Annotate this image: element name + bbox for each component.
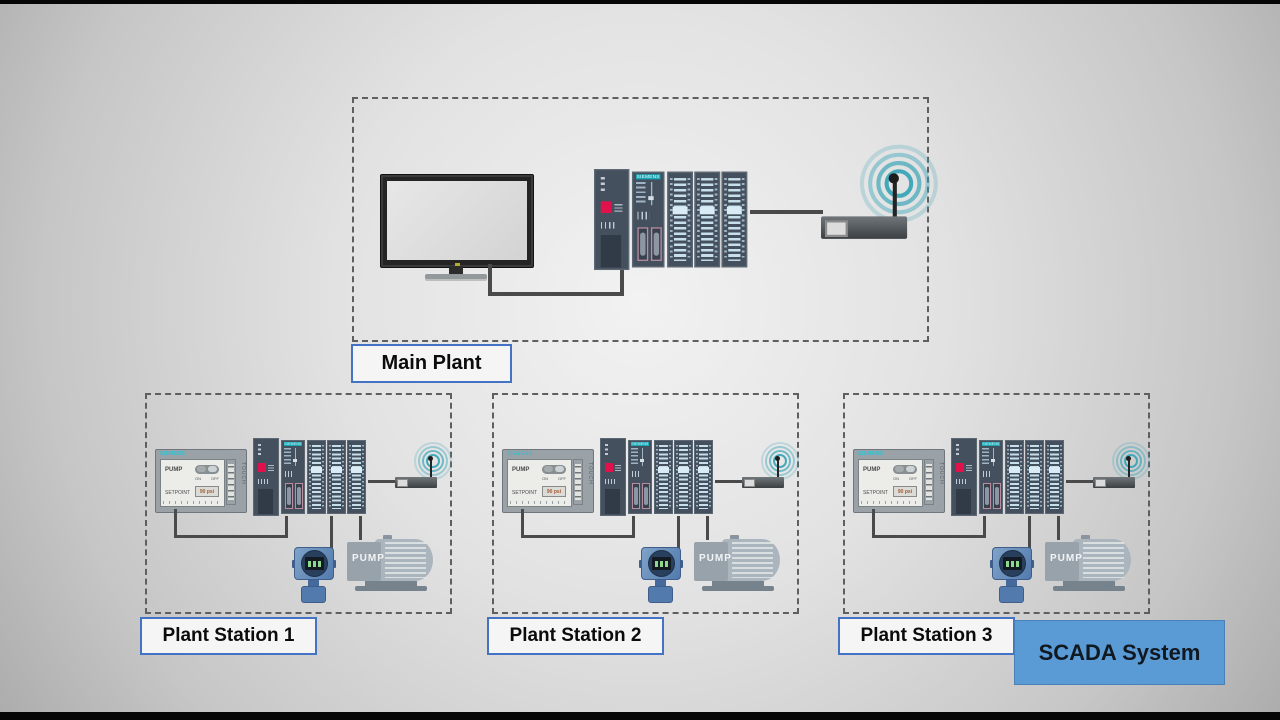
pump-on-off-toggle [195,465,219,474]
hmi-screen: PUMP ON OFF SETPOINT 90 psi [858,459,923,507]
cpu-port-2 [651,227,662,261]
plc-status-leds [605,444,608,457]
plc-io-module [667,172,693,268]
io-terminal-rows [728,178,740,261]
router-antenna-tip [775,456,780,461]
io-terminal-rows [674,178,686,261]
io-label-band [311,467,322,473]
plc-status-leds [956,444,959,457]
scada-monitor [380,174,532,284]
router-antenna [1128,460,1130,478]
cpu-mode-slider [642,448,643,466]
hmi-screen: PUMP ON OFF SETPOINT 90 psi [160,459,225,507]
io-led-column [1020,445,1022,509]
io-label-band [678,467,689,473]
cable-plc-drop [632,516,635,538]
cable-hmi-plc [521,535,635,538]
flow-display-bezel [301,550,328,577]
plc-power-slot [605,489,620,514]
router-body [1093,477,1135,488]
io-led-column [669,445,671,509]
cable-hmi-plc [174,535,288,538]
router-antenna-tip [889,173,899,183]
cpu-port-1 [632,483,640,509]
wireless-router [821,161,915,243]
plc-io-module [1025,440,1044,514]
siemens-logo: SIEMENS [982,442,1000,446]
io-led-column [349,445,351,509]
router-antenna [430,460,432,478]
plc-rack: SIEMENS [253,438,368,516]
wireless-router [395,450,441,490]
station-label: Plant Station 3 [838,617,1015,655]
hmi-side-label: TOUCH [584,462,593,485]
cpu-port-1 [637,227,648,261]
main-plant-boundary: SIEMENS [352,97,929,342]
pump-foot [702,586,774,591]
toggle-off-label: OFF [558,476,566,481]
io-led-column [689,445,691,509]
monitor-screen [387,181,527,260]
router-body [742,477,784,488]
hmi-panel: SIEMENS PUMP ON OFF SETPOINT 90 psi TOUC… [502,449,594,513]
cable-plc-drop [983,516,986,538]
router-port [825,220,848,236]
cpu-mode-slider-knob [648,196,653,200]
station-boundary: SIEMENS PUMP ON OFF SETPOINT 90 psi TOUC… [145,393,452,614]
flow-transmitter-body [992,547,1032,580]
siemens-logo: SIEMENS [631,442,649,446]
scada-box-text: SCADA System [1039,640,1201,666]
plc-io-module [694,440,713,514]
io-led-column [697,178,700,261]
monitor-stand-neck [449,266,463,274]
main-plant-label-text: Main Plant [381,352,481,375]
plc-cpu-module: SIEMENS [979,440,1003,514]
cable-plc-router [715,480,743,483]
station-label-text: Plant Station 2 [510,625,642,647]
toggle-on-label: ON [893,476,899,481]
io-led-column [1007,445,1009,509]
toggle-labels: ON OFF [195,476,219,481]
plc-label-lines [614,204,622,212]
toggle-off-label: OFF [211,476,219,481]
flow-transmitter [294,542,334,604]
flow-meter-flange [999,586,1024,603]
io-led-column [1027,445,1029,509]
cpu-port-2 [295,483,303,509]
siemens-logo: SIEMENS [636,174,660,179]
io-led-column [329,445,331,509]
io-led-column [696,445,698,509]
letterbox-top [0,0,1280,4]
cable-hmi-drop [174,509,177,538]
io-led-column [322,445,324,509]
plc-terminal-marks [956,479,966,484]
plc-label-lines [966,465,972,471]
io-terminal-rows [1050,445,1059,509]
router-antenna [777,460,779,478]
plc-io-module [721,172,747,268]
router-port [1095,479,1106,487]
io-led-column [656,445,658,509]
plc-power-slot [601,235,621,267]
plc-power-module [600,438,626,516]
router-antenna [893,182,897,219]
io-terminal-rows [352,445,361,509]
io-terminal-rows [679,445,688,509]
cpu-port-1 [983,483,991,509]
io-label-band [331,467,342,473]
router-antenna-tip [428,456,433,461]
hmi-panel: SIEMENS PUMP ON OFF SETPOINT 90 psi TOUC… [155,449,247,513]
cable-monitor-plc [488,292,624,296]
wireless-router-device [1093,450,1139,490]
io-led-column [676,445,678,509]
io-led-column [724,178,727,261]
plc-rack-modules: SIEMENS [600,438,715,516]
hmi-pump-label: PUMP [165,467,182,473]
cable-hmi-drop [872,509,875,538]
cpu-mode-slider [993,448,994,466]
router-body [821,216,907,239]
plc-io-module [1045,440,1064,514]
io-led-column [342,445,344,509]
flow-transmitter-body [641,547,681,580]
toggle-on-label: ON [542,476,548,481]
flow-display [652,557,671,570]
router-port [744,479,755,487]
plc-io-module [307,440,326,514]
plc-rack: SIEMENS [600,438,715,516]
hmi-side-label: TOUCH [935,462,944,485]
wireless-router-device [742,450,788,490]
flow-meter-flange [648,586,673,603]
cpu-led-column [982,448,989,464]
io-label-band [1009,467,1020,473]
flow-display [1003,557,1022,570]
hmi-panel: SIEMENS PUMP ON OFF SETPOINT 90 psi TOUC… [853,449,945,513]
plc-terminal-marks [605,479,615,484]
cable-plc-router [1066,480,1094,483]
io-terminal-rows [312,445,321,509]
plc-rack-modules: SIEMENS [253,438,368,516]
cable-plc-drop [620,270,624,296]
io-led-column [742,178,745,261]
pump-motor: PUMP [694,535,782,593]
setpoint-label: SETPOINT [863,490,888,496]
plc-power-module [594,169,629,270]
plc-io-module [327,440,346,514]
io-terminal-rows [1030,445,1039,509]
monitor-stand-base [425,274,487,279]
hmi-menu-strip [573,459,583,505]
pump-label: PUMP [352,553,385,564]
cpu-port-2 [642,483,650,509]
io-led-column [1047,445,1049,509]
scada-overview-diagram: SIEMENS [0,0,1280,720]
plc-cpu-module: SIEMENS [281,440,305,514]
plc-rack: SIEMENS [594,169,750,270]
siemens-logo: SIEMENS [160,451,185,458]
pump-on-off-toggle [542,465,566,474]
toggle-on-label: ON [195,476,201,481]
pump-label: PUMP [699,553,732,564]
io-label-band [658,467,669,473]
toggle-off-label: OFF [909,476,917,481]
scada-box: SCADA System [1014,620,1225,685]
plc-rack-modules: SIEMENS [951,438,1066,516]
cpu-terminal-marks [632,471,641,477]
io-led-column [715,178,718,261]
io-label-band [1049,467,1060,473]
hmi-pump-label: PUMP [863,467,880,473]
pump-foot [355,586,427,591]
cpu-led-column [636,182,645,203]
plc-terminal-marks [258,479,268,484]
plc-label-lines [615,465,621,471]
hmi-pump-label: PUMP [512,467,529,473]
io-terminal-rows [1010,445,1019,509]
cpu-mode-slider [651,182,652,205]
hmi-menu-strip [924,459,934,505]
toggle-labels: ON OFF [893,476,917,481]
plc-cpu-module: SIEMENS [632,172,665,268]
io-led-column [1060,445,1062,509]
io-led-column [670,178,673,261]
flow-display-bezel [999,550,1026,577]
io-terminal-rows [701,178,713,261]
cpu-mode-slider-knob [293,459,297,462]
plc-power-slot [258,489,273,514]
monitor-frame [380,174,534,268]
setpoint-value: 90 psi [542,486,566,497]
siemens-logo: SIEMENS [858,451,883,458]
siemens-logo: SIEMENS [284,442,302,446]
cpu-terminal-marks [983,471,992,477]
io-label-band [673,206,688,214]
plc-io-module [654,440,673,514]
cpu-mode-slider-knob [640,459,644,462]
plc-io-module [347,440,366,514]
wireless-router [742,450,788,490]
toggle-labels: ON OFF [542,476,566,481]
cable-hmi-plc [872,535,986,538]
plc-power-module [253,438,279,516]
cpu-terminal-marks [637,212,649,220]
wireless-router-device [395,450,441,490]
station-label-text: Plant Station 1 [163,625,295,647]
plc-red-indicator [956,463,964,472]
cpu-led-column [631,448,638,464]
plc-status-leds [258,444,261,457]
io-label-band [700,206,715,214]
pump-on-off-toggle [893,465,917,474]
siemens-logo: SIEMENS [507,451,532,458]
io-led-column [309,445,311,509]
plc-power-module [951,438,977,516]
plc-label-lines [268,465,274,471]
cpu-led-column [284,448,291,464]
io-label-band [727,206,742,214]
cable-hmi-drop [521,509,524,538]
cable-plc-router [750,210,823,214]
flow-meter-flange [301,586,326,603]
cpu-port-1 [285,483,293,509]
cpu-terminal-marks [285,471,294,477]
setpoint-value: 90 psi [893,486,917,497]
plc-io-module [674,440,693,514]
plc-power-slot [956,489,971,514]
flow-transmitter [641,542,681,604]
setpoint-label: SETPOINT [512,490,537,496]
io-led-column [1040,445,1042,509]
station-label-text: Plant Station 3 [861,625,993,647]
station-label: Plant Station 1 [140,617,317,655]
pump-foot [1053,586,1125,591]
cpu-mode-slider [295,448,296,466]
io-led-column [688,178,691,261]
io-terminal-rows [332,445,341,509]
router-body [395,477,437,488]
io-label-band [351,467,362,473]
hmi-screen: PUMP ON OFF SETPOINT 90 psi [507,459,572,507]
pump-motor: PUMP [347,535,435,593]
cable-plc-drop [285,516,288,538]
flow-display-bezel [648,550,675,577]
station-boundary: SIEMENS PUMP ON OFF SETPOINT 90 psi TOUC… [492,393,799,614]
plc-red-indicator [258,463,266,472]
cpu-mode-slider-knob [991,459,995,462]
io-terminal-rows [659,445,668,509]
router-antenna-tip [1126,456,1131,461]
flow-display [305,557,324,570]
plc-rack-modules: SIEMENS [594,169,750,270]
plc-io-module [694,172,720,268]
wireless-router-device [821,161,915,243]
setpoint-value: 90 psi [195,486,219,497]
hmi-menu-strip [226,459,236,505]
plc-io-module [1005,440,1024,514]
io-led-column [709,445,711,509]
plc-red-indicator [601,201,612,213]
io-label-band [1029,467,1040,473]
letterbox-bottom [0,712,1280,720]
io-terminal-rows [699,445,708,509]
router-port [397,479,408,487]
station-boundary: SIEMENS PUMP ON OFF SETPOINT 90 psi TOUC… [843,393,1150,614]
cpu-port-2 [993,483,1001,509]
plc-red-indicator [605,463,613,472]
cable-plc-router [368,480,396,483]
main-plant-label: Main Plant [351,344,512,383]
plc-rack: SIEMENS [951,438,1066,516]
wireless-router [1093,450,1139,490]
flow-transmitter-body [294,547,334,580]
plc-status-leds [601,177,605,194]
io-label-band [698,467,709,473]
plc-terminal-marks [601,222,615,228]
io-led-column [362,445,364,509]
pump-motor: PUMP [1045,535,1133,593]
plc-cpu-module: SIEMENS [628,440,652,514]
pump-label: PUMP [1050,553,1083,564]
hmi-side-label: TOUCH [237,462,246,485]
setpoint-label: SETPOINT [165,490,190,496]
station-label: Plant Station 2 [487,617,664,655]
flow-transmitter [992,542,1032,604]
